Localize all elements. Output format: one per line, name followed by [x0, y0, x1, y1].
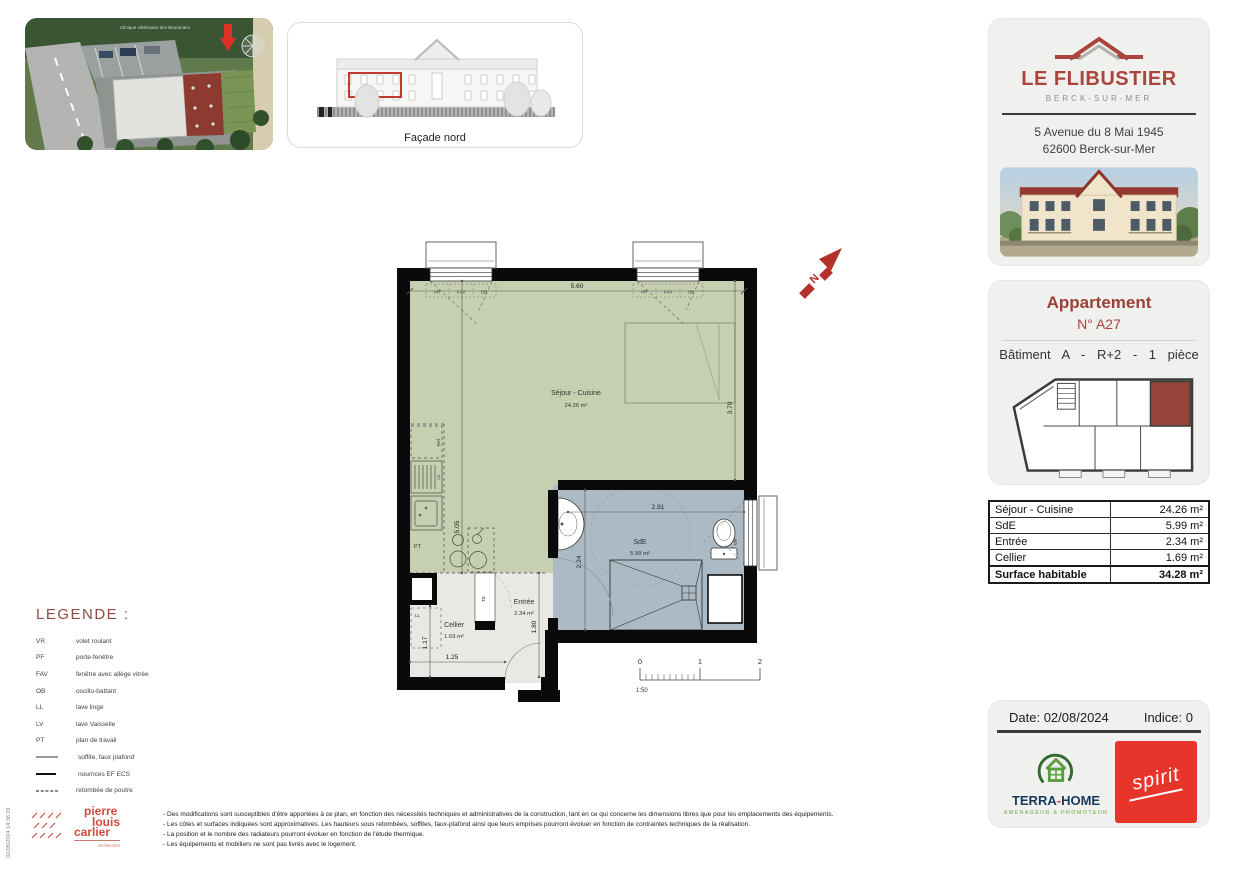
svg-text:Cellier: Cellier — [444, 622, 465, 629]
legend-item: VR volet roulant — [36, 633, 266, 650]
architect-hatch-icon — [30, 806, 70, 842]
toilet — [713, 519, 735, 547]
table-row: Cellier 1.69 m² — [989, 550, 1209, 567]
legend-key: OB — [36, 688, 76, 695]
svg-text:1.25: 1.25 — [446, 654, 459, 661]
legend-key: LL — [36, 704, 76, 711]
legend-item: OB oscillo-battant — [36, 683, 266, 700]
legend-key — [36, 790, 58, 792]
date-line: Date: 02/08/2024 — [1009, 710, 1109, 725]
revision-card: Date: 02/08/2024 Indice: 0 TERRA-HOME — [988, 700, 1210, 828]
address-line2: 62600 Berck-sur-Mer — [989, 141, 1209, 158]
legend-key: PT — [36, 737, 76, 744]
legend-desc: volet roulant — [76, 638, 111, 645]
legend-item: nourrices EF ECS — [36, 766, 266, 783]
floor-plan: VR FAV OB VR FAV OB VR — [378, 228, 788, 708]
svg-text:1.69 m²: 1.69 m² — [444, 634, 464, 640]
svg-text:PT: PT — [414, 544, 422, 550]
architect-sub: architectes — [74, 840, 120, 852]
svg-text:TE: TE — [481, 596, 486, 602]
room-area: 34.28 m² — [1110, 566, 1209, 583]
roof-logo-icon — [1053, 31, 1145, 61]
facade-thumbnail: Façade nord — [287, 22, 583, 148]
north-arrow-icon: N — [792, 240, 848, 300]
duct-shaft — [708, 575, 742, 623]
print-timestamp: 02/08/2024 14:38:29 — [6, 808, 12, 858]
legend-desc: fenêtre avec allège vitrée — [76, 671, 149, 678]
room-label: Entrée — [989, 534, 1110, 550]
indice-line: Indice: 0 — [1144, 710, 1193, 725]
svg-text:1.80: 1.80 — [531, 620, 538, 633]
svg-text:2.34 m²: 2.34 m² — [514, 611, 534, 617]
date-value: 02/08/2024 — [1044, 710, 1109, 725]
svg-text:5.99 m²: 5.99 m² — [630, 551, 650, 557]
svg-text:5.05: 5.05 — [454, 520, 461, 533]
legend-desc: lave Vaisselle — [76, 721, 115, 728]
room-area: 1.69 m² — [1110, 550, 1209, 567]
floor-locator — [1000, 370, 1198, 489]
svg-text:5.60: 5.60 — [571, 283, 584, 290]
car — [144, 46, 160, 54]
room-label: Surface habitable — [989, 566, 1110, 583]
facade-drawing — [289, 29, 582, 125]
aerial-illustration: Clinique vétérinaire des Beuraniers — [25, 18, 273, 150]
legend-key — [36, 756, 58, 758]
legend-key: LV — [36, 721, 76, 728]
disclaimer-line: - Les côtes et surfaces indiquées sont a… — [163, 820, 853, 830]
svg-text:3.70: 3.70 — [727, 401, 734, 414]
date-label: Date: — [1009, 710, 1040, 725]
table-row: SdE 5.99 m² — [989, 518, 1209, 534]
room-label: Cellier — [989, 550, 1110, 567]
terra-name-a: TERRA — [1012, 793, 1057, 808]
disclaimer-line: - Les équipements et mobiliers ne sont p… — [163, 840, 853, 850]
aerial-site-photo: Clinique vétérinaire des Beuraniers — [25, 18, 273, 150]
room-label: Séjour - Cuisine — [989, 501, 1110, 518]
address-line1: 5 Avenue du 8 Mai 1945 — [989, 124, 1209, 141]
legend-desc: lave linge — [76, 704, 103, 711]
disclaimer-line: - La position et le nombre des radiateur… — [163, 830, 853, 840]
room-label: SdE — [989, 518, 1110, 534]
legend: LEGENDE : VR volet roulant PF porte-fenê… — [36, 606, 266, 799]
legend-desc: nourrices EF ECS — [78, 771, 130, 778]
legend-item: LV lave Vaisselle — [36, 716, 266, 733]
svg-text:1.17: 1.17 — [422, 636, 429, 649]
legend-key: FAV — [36, 671, 76, 678]
apartment-highlight — [1150, 381, 1190, 426]
room-area: 5.99 m² — [1110, 518, 1209, 534]
apartment-title: Appartement — [989, 293, 1209, 313]
terra-home-logo: TERRA-HOME AMÉNAGEUR & PROMOTEUR — [997, 749, 1115, 816]
legend-item: FAV fenêtre avec allège vitrée — [36, 666, 266, 683]
terra-name-b: HOME — [1061, 793, 1100, 808]
svg-text:2.91: 2.91 — [652, 504, 665, 511]
indice-label: Indice: — [1144, 710, 1182, 725]
svg-text:LL: LL — [415, 613, 421, 618]
indice-value: 0 — [1186, 710, 1193, 725]
svg-text:Ref.: Ref. — [436, 438, 441, 446]
svg-text:24.26 m²: 24.26 m² — [565, 403, 588, 409]
svg-text:2: 2 — [758, 657, 762, 666]
legend-desc: soffite, faux plafond — [78, 754, 134, 761]
legend-key: PF — [36, 654, 76, 661]
architect-line3: carlier — [74, 827, 120, 838]
spirit-logo: spirit — [1115, 741, 1197, 823]
room-area: 2.34 m² — [1110, 534, 1209, 550]
legend-item: soffite, faux plafond — [36, 749, 266, 766]
svg-text:VR: VR — [733, 538, 738, 545]
scale-bar: 0 1 2 1:50 — [636, 657, 762, 694]
legend-title: LEGENDE : — [36, 606, 266, 623]
svg-text:Séjour - Cuisine: Séjour - Cuisine — [551, 390, 601, 397]
architect-logo: pierre louis carlier architectes — [30, 806, 120, 851]
table-row: Surface habitable 34.28 m² — [989, 566, 1209, 583]
car — [99, 51, 113, 58]
svg-text:Entrée: Entrée — [514, 599, 535, 606]
legend-key: VR — [36, 638, 76, 645]
compass-icon — [242, 35, 264, 57]
svg-text:1:50: 1:50 — [636, 688, 648, 694]
car — [120, 48, 136, 56]
legend-desc: oscillo-battant — [76, 688, 116, 695]
svg-text:2.24: 2.24 — [576, 555, 583, 568]
building-render — [1000, 167, 1198, 257]
divider — [1002, 113, 1196, 115]
disclaimer-line: - Des modifications sont susceptibles d'… — [163, 810, 853, 820]
svg-text:FAV: FAV — [457, 290, 466, 295]
apartment-summary: Bâtiment A - R+2 - 1 pièce — [989, 347, 1209, 362]
table-row: Entrée 2.34 m² — [989, 534, 1209, 550]
terra-tagline: AMÉNAGEUR & PROMOTEUR — [1004, 810, 1108, 816]
apartment-number: N° A27 — [989, 316, 1209, 332]
aerial-caption: Clinique vétérinaire des Beuraniers — [120, 25, 191, 30]
divider — [1003, 340, 1195, 341]
disclaimers: - Des modifications sont susceptibles d'… — [163, 810, 853, 850]
legend-desc: plan de travail — [76, 737, 116, 744]
project-name: LE FLIBUSTIER — [989, 68, 1209, 91]
svg-text:0: 0 — [638, 657, 642, 666]
project-city: BERCK-SUR-MER — [989, 94, 1209, 103]
project-card: LE FLIBUSTIER BERCK-SUR-MER 5 Avenue du … — [988, 18, 1210, 266]
svg-text:1: 1 — [698, 657, 702, 666]
legend-key — [36, 773, 56, 775]
facade-caption: Façade nord — [288, 132, 582, 144]
legend-item: PT plan de travail — [36, 733, 266, 750]
legend-desc: retombée de poutre — [76, 787, 133, 794]
legend-item: retombée de poutre — [36, 782, 266, 799]
apartment-card: Appartement N° A27 Bâtiment A - R+2 - 1 … — [988, 280, 1210, 485]
legend-item: PF porte-fenêtre — [36, 650, 266, 667]
svg-text:SdE: SdE — [633, 539, 647, 546]
room-area: 24.26 m² — [1110, 501, 1209, 518]
plan-sheet: Clinique vétérinaire des Beuraniers — [0, 0, 1240, 877]
terra-home-icon — [1035, 749, 1077, 791]
table-row: Séjour - Cuisine 24.26 m² — [989, 501, 1209, 518]
areas-table: Séjour - Cuisine 24.26 m² SdE 5.99 m² En… — [988, 500, 1210, 584]
legend-item: LL lave linge — [36, 699, 266, 716]
legend-desc: porte-fenêtre — [76, 654, 113, 661]
svg-text:FAV: FAV — [664, 290, 673, 295]
